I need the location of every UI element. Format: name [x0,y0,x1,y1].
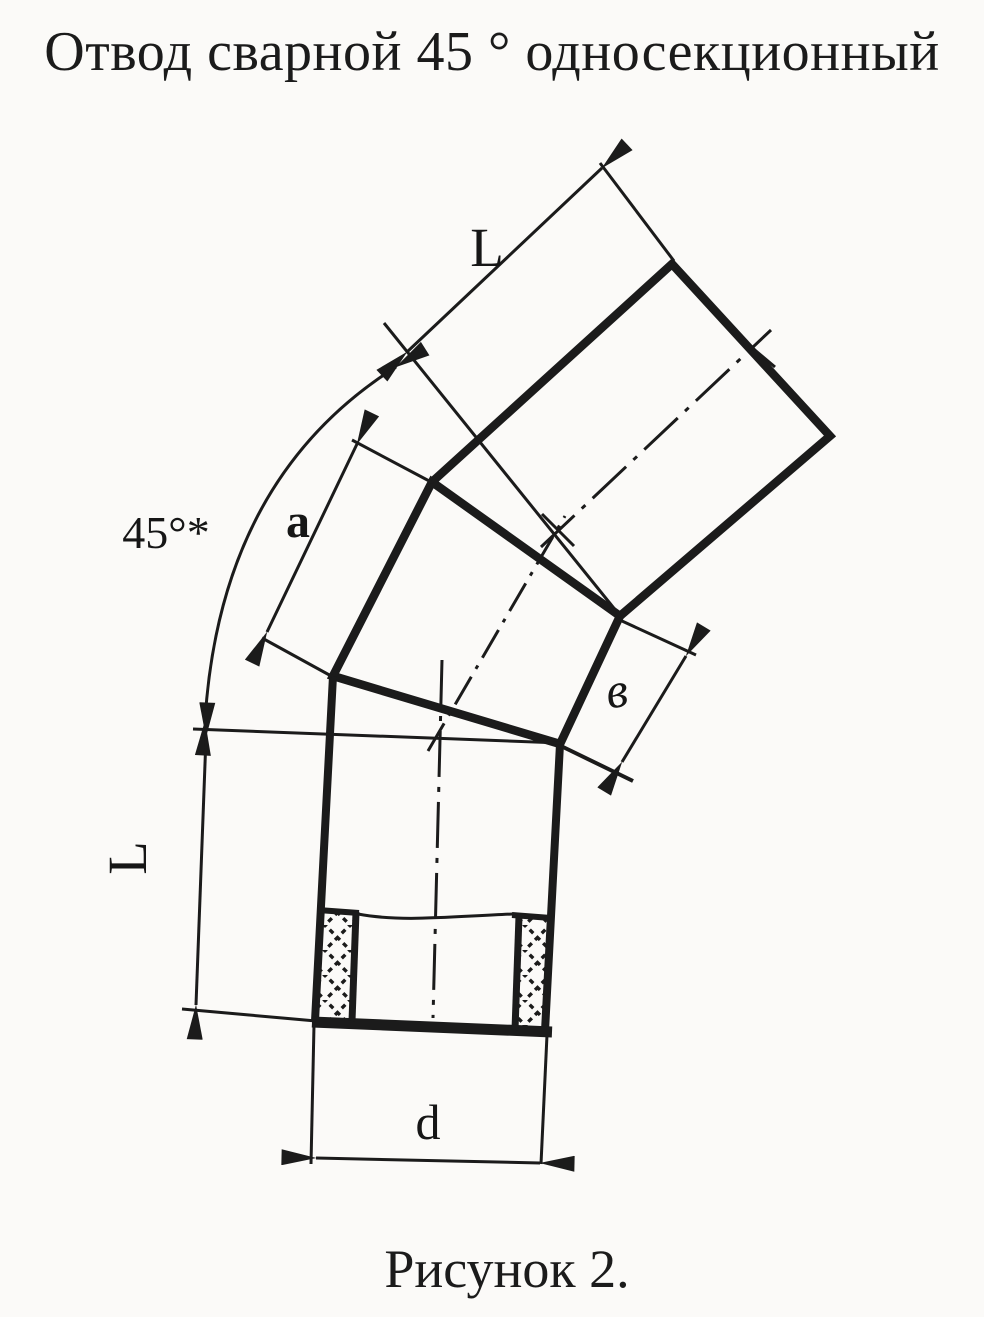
label-left-length: L [97,841,158,875]
label-diameter: d [416,1094,441,1150]
ext-line-a-upper [352,440,433,483]
dim-line-top-length [407,168,602,352]
middle-segment-centerline [428,516,565,751]
left-gasket-inner-edge [352,912,356,1021]
label-segment-length: a [286,495,310,548]
dim-line-diameter [316,1158,540,1163]
dim-line-left-length [196,737,206,1005]
ext-line-bottom-face [182,1009,316,1021]
elbow-technical-drawing: L 45°* a в L d [0,0,984,1317]
dim-line-face-width [622,656,686,762]
left-gasket-hatch [316,913,354,1020]
ext-line-face-width-lower [561,746,633,781]
scanned-drawing-page: Отвод сварной 45 ° односекционный [0,0,984,1317]
ext-line-d-left [311,1025,314,1164]
bottom-pipe-centerline [433,660,442,1018]
dim-line-segment-length [267,444,357,632]
ext-line-a-lower [262,638,333,677]
label-angle: 45°* [122,507,209,558]
right-gasket-inner-edge [515,916,519,1030]
top-pipe-outline [432,264,830,616]
label-face-width: в [602,661,631,719]
label-top-length: L [470,217,504,278]
figure-caption: Рисунок 2. [30,1238,984,1300]
ext-line-face-width-upper [622,621,696,655]
ext-line-end-face [600,163,674,261]
ext-line-upper-weld-vertex [384,323,621,617]
ext-line-d-right [541,1035,547,1164]
middle-segment-outline [333,482,620,744]
